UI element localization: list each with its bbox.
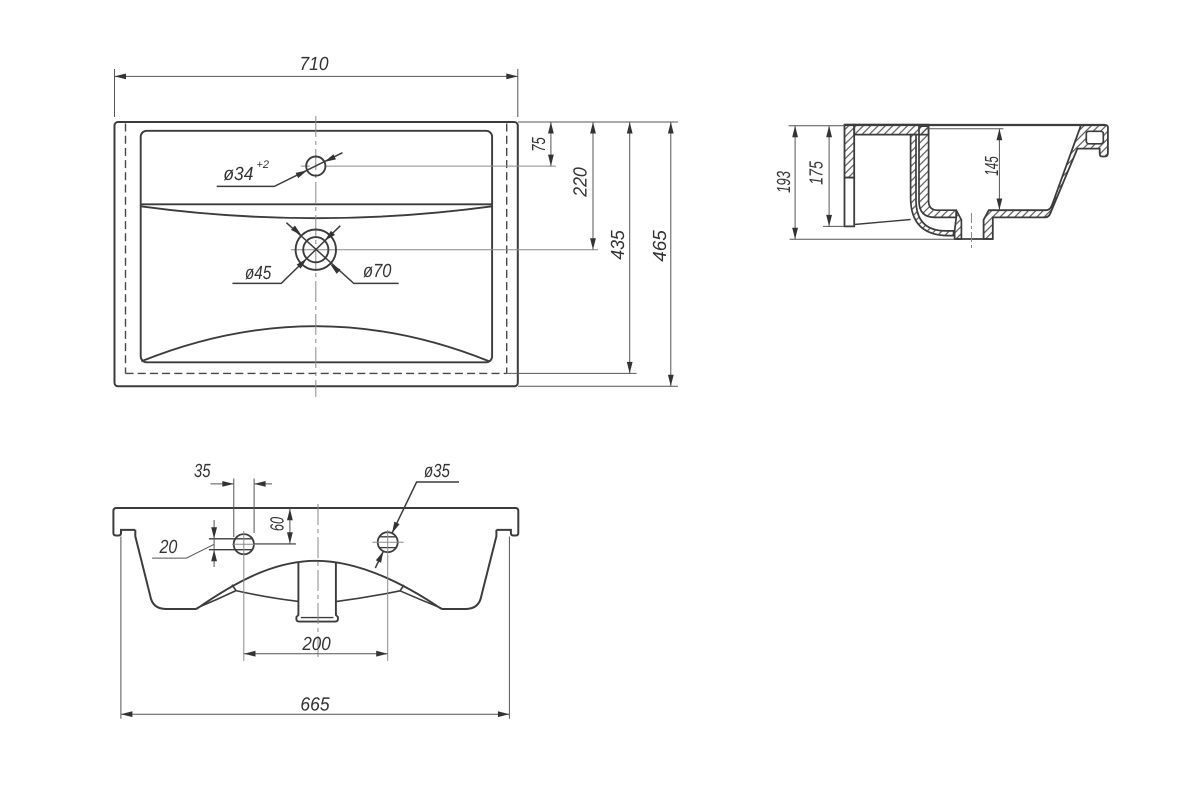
svg-text:35: 35 xyxy=(194,461,211,482)
svg-text:435: 435 xyxy=(608,230,629,260)
svg-text:ø45: ø45 xyxy=(245,263,272,284)
svg-text:60: 60 xyxy=(268,517,289,531)
svg-text:200: 200 xyxy=(301,634,331,655)
svg-text:710: 710 xyxy=(300,54,329,75)
svg-text:665: 665 xyxy=(300,695,330,716)
svg-text:193: 193 xyxy=(774,171,795,193)
svg-text:ø70: ø70 xyxy=(363,261,392,282)
svg-text:465: 465 xyxy=(650,230,671,262)
svg-text:220: 220 xyxy=(571,167,592,198)
svg-text:+2: +2 xyxy=(256,159,269,171)
svg-text:ø35: ø35 xyxy=(424,461,450,482)
svg-text:ø34: ø34 xyxy=(223,164,253,185)
svg-text:145: 145 xyxy=(982,156,1003,176)
svg-text:175: 175 xyxy=(807,161,828,185)
svg-text:75: 75 xyxy=(529,137,550,152)
svg-text:20: 20 xyxy=(159,537,178,558)
